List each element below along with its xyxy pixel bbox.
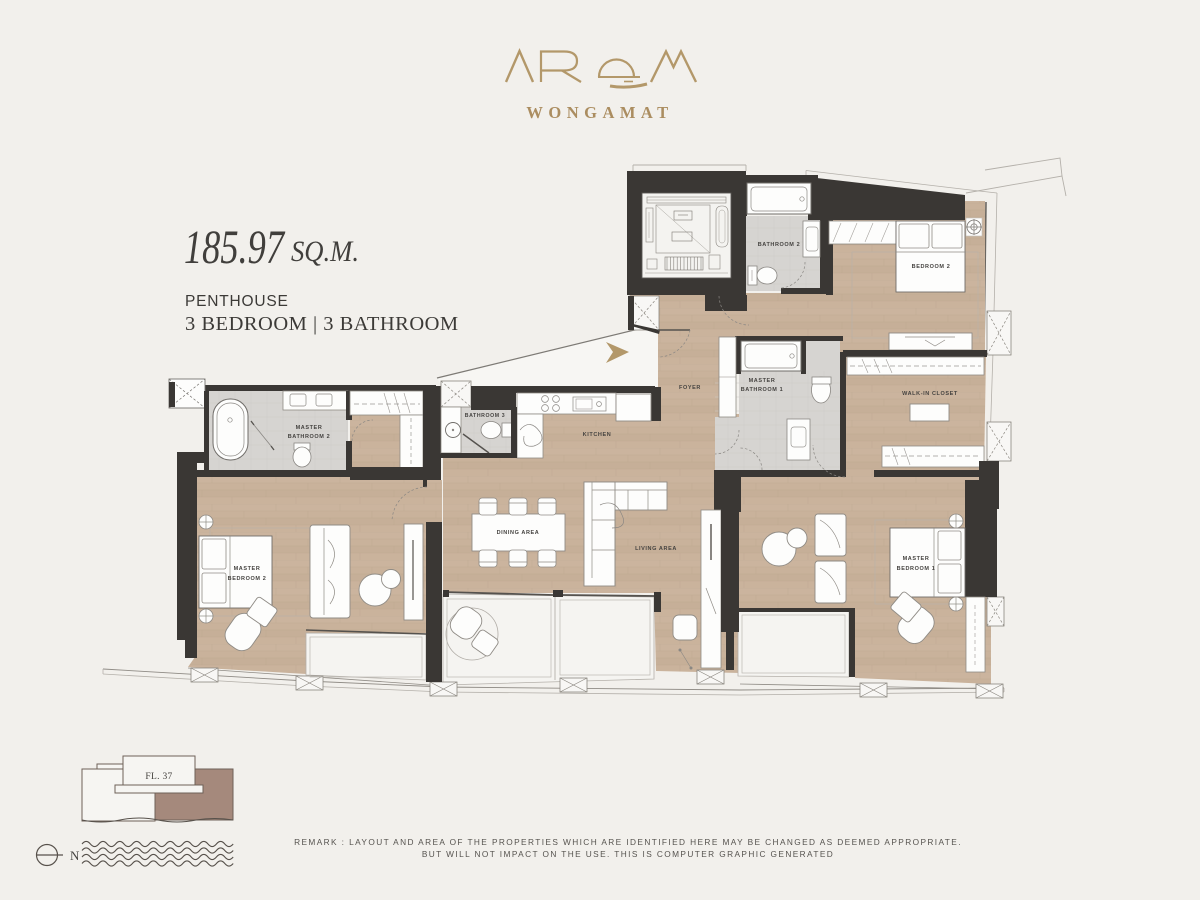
svg-text:WONGAMAT: WONGAMAT: [526, 103, 673, 122]
svg-text:FL. 37: FL. 37: [145, 772, 172, 782]
svg-text:KITCHEN: KITCHEN: [583, 432, 612, 438]
svg-text:BATHROOM 3: BATHROOM 3: [465, 413, 506, 419]
svg-text:BATHROOM 2: BATHROOM 2: [758, 242, 801, 248]
svg-text:WALK-IN CLOSET: WALK-IN CLOSET: [902, 391, 958, 397]
svg-text:SQ.M.: SQ.M.: [291, 235, 359, 268]
svg-text:BEDROOM 2: BEDROOM 2: [228, 576, 267, 582]
svg-text:N: N: [70, 848, 80, 863]
svg-text:MASTER: MASTER: [749, 378, 776, 384]
svg-text:BATHROOM 1: BATHROOM 1: [741, 387, 784, 393]
svg-text:PENTHOUSE: PENTHOUSE: [185, 293, 289, 310]
svg-text:MASTER: MASTER: [234, 566, 261, 572]
svg-text:MASTER: MASTER: [296, 425, 323, 431]
svg-text:3 BEDROOM | 3 BATHROOM: 3 BEDROOM | 3 BATHROOM: [185, 313, 459, 335]
svg-text:BEDROOM 2: BEDROOM 2: [912, 264, 951, 270]
svg-text:BATHROOM 2: BATHROOM 2: [288, 434, 331, 440]
svg-text:BUT WILL NOT IMPACT ON THE USE: BUT WILL NOT IMPACT ON THE USE. THIS IS …: [422, 849, 834, 859]
svg-text:FOYER: FOYER: [679, 385, 701, 391]
svg-text:BEDROOM 1: BEDROOM 1: [897, 566, 936, 572]
svg-text:DINING AREA: DINING AREA: [497, 530, 540, 536]
svg-text:MASTER: MASTER: [903, 556, 930, 562]
svg-text:REMARK : LAYOUT AND AREA OF TH: REMARK : LAYOUT AND AREA OF THE PROPERTI…: [294, 837, 962, 847]
svg-text:185.97: 185.97: [184, 221, 286, 274]
svg-text:LIVING AREA: LIVING AREA: [635, 546, 677, 552]
